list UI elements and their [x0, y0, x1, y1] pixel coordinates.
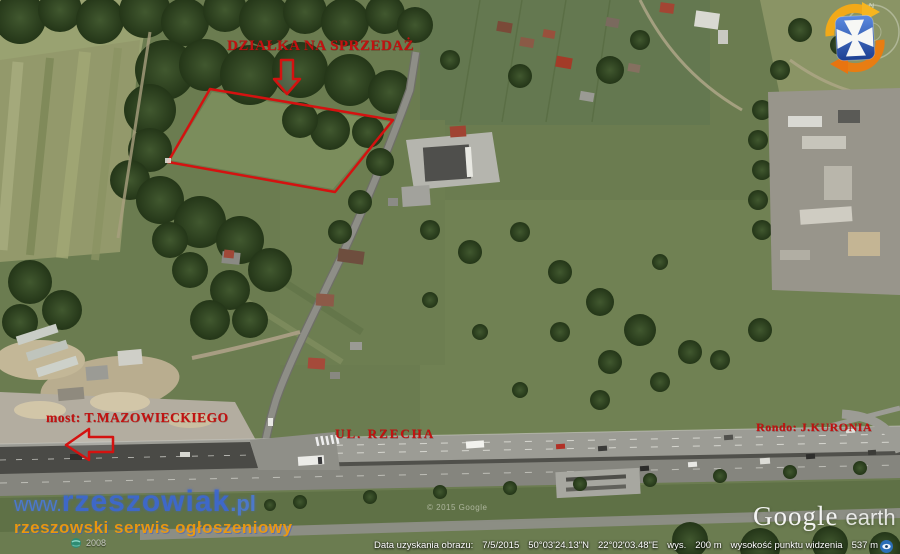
- attribution-year: 2008: [86, 538, 106, 548]
- google-logo-text: Google: [753, 501, 838, 531]
- street-label: UL. RZECHA: [335, 426, 435, 442]
- watermark-site-name: rzeszowiak: [62, 485, 230, 518]
- eye-altitude-label: wysokość punktu widzenia: [731, 540, 843, 551]
- eye-icon: [879, 539, 894, 554]
- status-bar: Data uzyskania obrazu: 7/5/2015 50°03'24…: [470, 540, 878, 551]
- latitude-value: 50°03'24.13"N: [528, 540, 589, 551]
- imagery-date-label: Data uzyskania obrazu:: [374, 540, 473, 551]
- rzeszowiak-logo: N: [816, 0, 900, 84]
- rzeszowiak-watermark: www.rzeszowiak.pl rzeszowski serwis ogło…: [14, 487, 293, 536]
- earth-logo-text: earth: [845, 505, 895, 530]
- longitude-value: 22°02'03.48"E: [598, 540, 658, 551]
- eye-altitude-value: 537 m: [852, 540, 878, 551]
- bridge-label: most: T.MAZOWIECKIEGO: [46, 410, 229, 426]
- watermark-url-prefix: www.: [14, 494, 62, 516]
- elevation-value: 200 m: [695, 540, 721, 551]
- google-earth-logo: Googleearth: [753, 501, 896, 532]
- plot-for-sale-label: DZIAŁKA NA SPRZEDAŻ: [227, 38, 414, 55]
- imagery-copyright: © 2015 Google: [427, 503, 487, 512]
- attribution-badge: 2008: [70, 537, 106, 549]
- google-earth-viewport: DZIAŁKA NA SPRZEDAŻ most: T.MAZOWIECKIEG…: [0, 0, 900, 554]
- aerial-imagery: [0, 0, 900, 554]
- globe-icon: [70, 537, 82, 549]
- imagery-date-value: 7/5/2015: [482, 540, 519, 551]
- rzeszow-cross-icon: [835, 15, 875, 61]
- underpass-structure: [555, 468, 640, 498]
- watermark-url-suffix: .pl: [230, 491, 256, 516]
- watermark-tagline: rzeszowski serwis ogłoszeniowy: [14, 519, 293, 536]
- roundabout-label: Rondo: J.KURONIA: [756, 420, 872, 435]
- elevation-label: wys.: [667, 540, 686, 551]
